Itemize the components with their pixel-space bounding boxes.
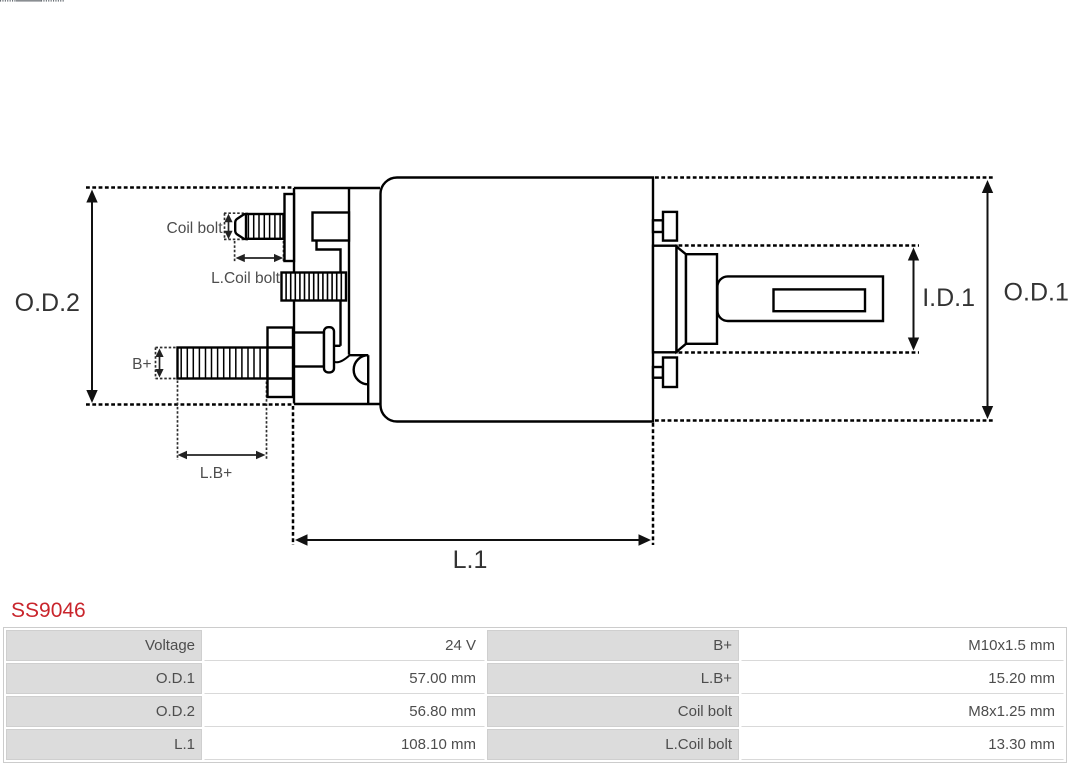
svg-text:L.Coil bolt: L.Coil bolt: [211, 270, 281, 287]
svg-text:L.B+: L.B+: [200, 465, 232, 482]
svg-text:B+: B+: [132, 356, 151, 373]
svg-text:I.D.1: I.D.1: [922, 284, 975, 312]
svg-text:L.1: L.1: [453, 546, 488, 574]
svg-text:Coil bolt: Coil bolt: [167, 220, 224, 237]
svg-text:O.D.2: O.D.2: [15, 289, 80, 317]
svg-text:O.D.1: O.D.1: [1004, 279, 1069, 307]
